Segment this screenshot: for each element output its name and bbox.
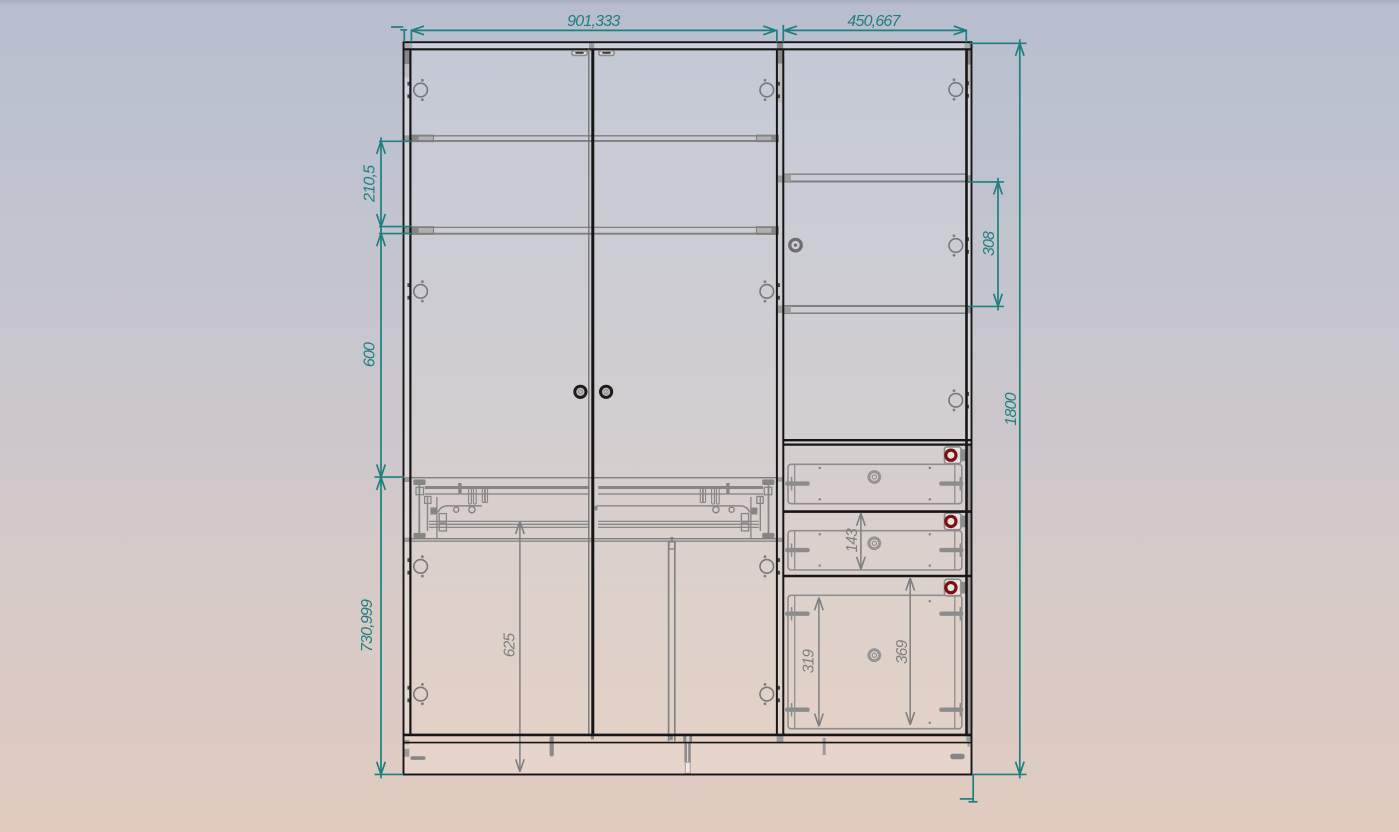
svg-text:308: 308 [981, 231, 998, 256]
svg-text:210,5: 210,5 [362, 165, 379, 203]
svg-text:450,667: 450,667 [847, 13, 901, 30]
svg-text:319: 319 [800, 649, 817, 674]
svg-text:143: 143 [844, 528, 861, 553]
svg-text:625: 625 [501, 633, 518, 658]
svg-text:901,333: 901,333 [567, 13, 620, 30]
svg-text:600: 600 [362, 342, 379, 367]
svg-text:730,999: 730,999 [359, 599, 376, 652]
svg-text:369: 369 [894, 639, 911, 664]
svg-text:1800: 1800 [1003, 392, 1020, 425]
